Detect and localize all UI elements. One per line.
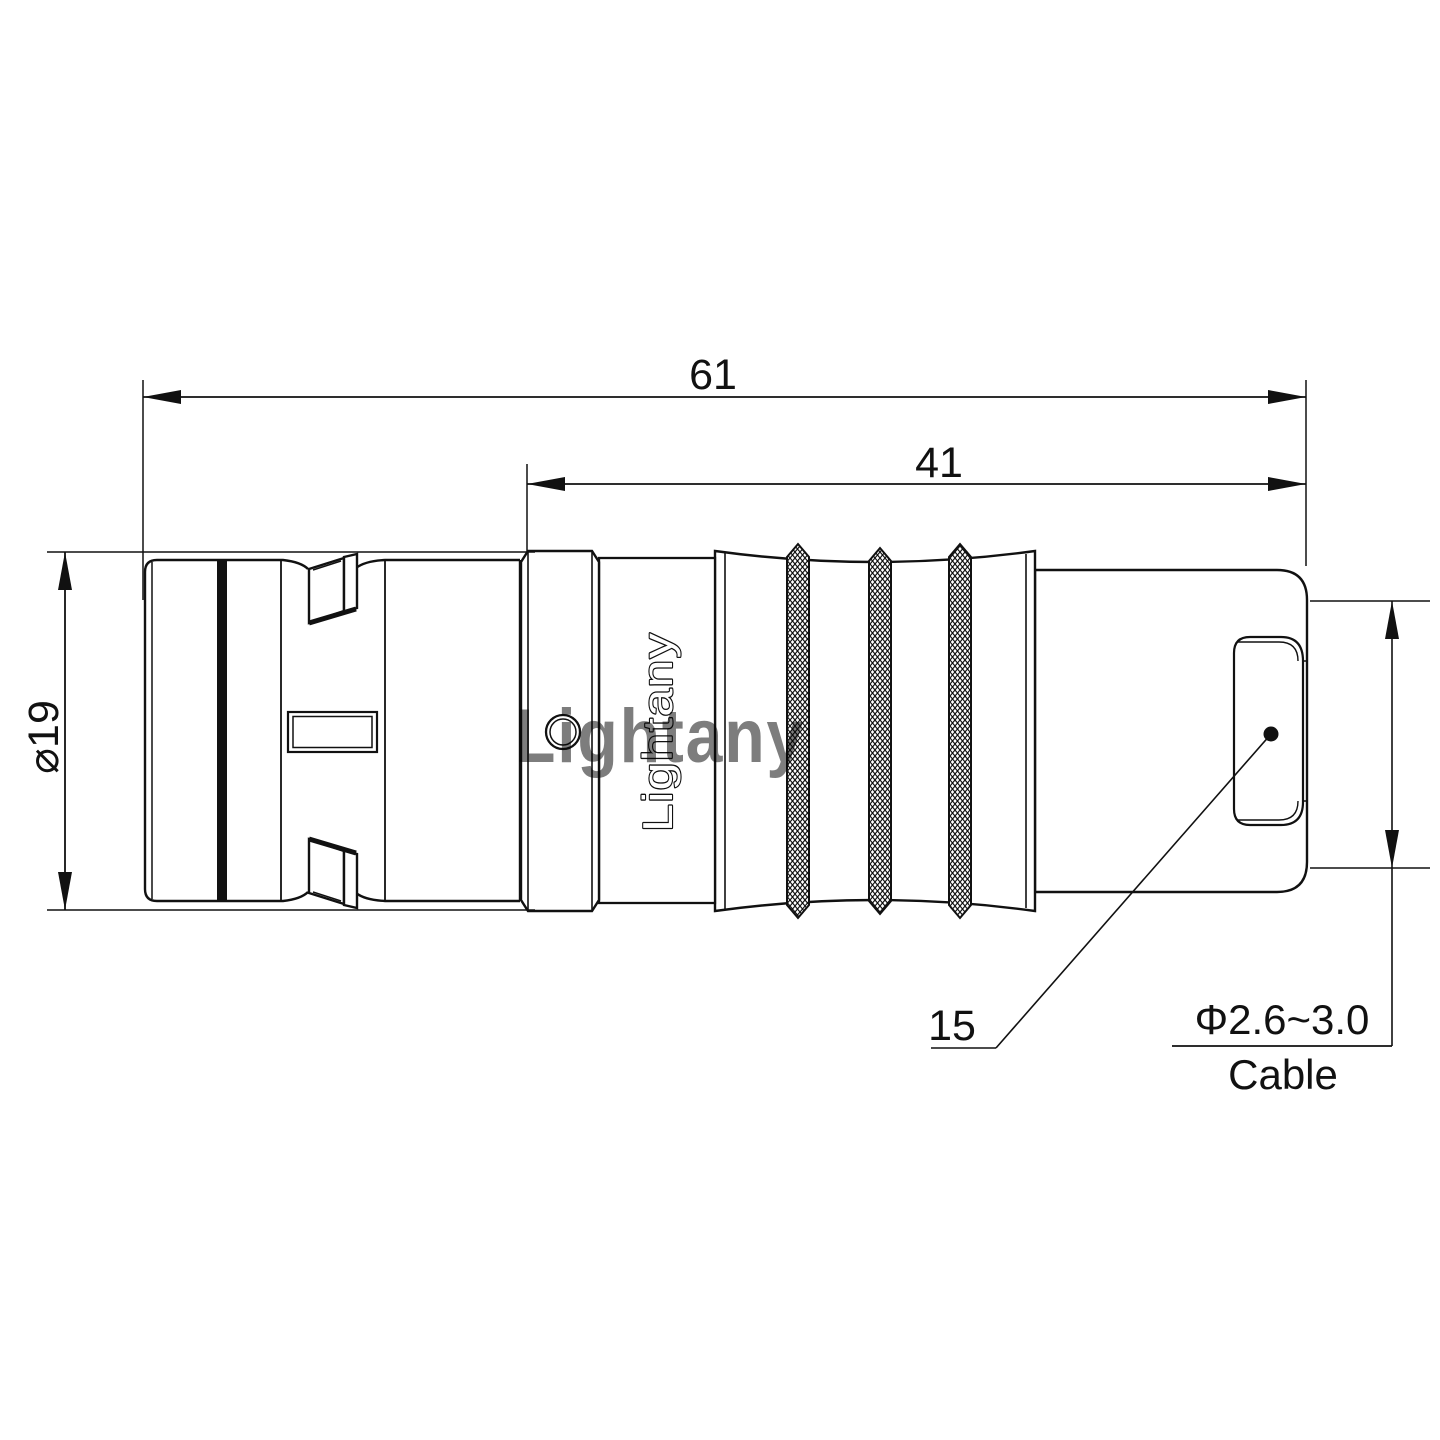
arrow-top-d19	[58, 552, 72, 590]
dim-text-d19: ⌀19	[20, 700, 68, 774]
watermark-text: Lightany	[515, 694, 805, 779]
latch-top-edge-bar	[344, 554, 357, 612]
dimension-rear-length: 41	[527, 439, 1306, 553]
technical-drawing-page: Lightany Lightany 61 41 ⌀	[0, 0, 1440, 1440]
dim-text-41: 41	[915, 439, 963, 487]
arrow-right-61	[1268, 390, 1306, 404]
key-slot-outer	[288, 712, 377, 752]
arrow-bottom-cable	[1385, 830, 1399, 868]
cable-diameter-text: Φ2.6~3.0	[1195, 996, 1370, 1043]
front-shell-black-band	[217, 561, 227, 900]
arrow-left-41	[527, 477, 565, 491]
arrow-bottom-d19	[58, 872, 72, 910]
connector-technical-drawing: Lightany Lightany 61 41 ⌀	[0, 0, 1440, 1440]
cable-label-text: Cable	[1228, 1051, 1338, 1098]
knurl-band-2	[869, 548, 891, 914]
callout-leader-dot	[1264, 727, 1279, 742]
arrow-right-41	[1268, 477, 1306, 491]
knurl-band-3	[949, 544, 971, 918]
front-shell	[145, 554, 520, 908]
arrow-top-cable	[1385, 601, 1399, 639]
dim-text-61: 61	[689, 351, 737, 399]
callout-text-15: 15	[928, 1002, 976, 1050]
arrow-left-61	[143, 390, 181, 404]
latch-bottom-edge-bar	[344, 850, 357, 908]
